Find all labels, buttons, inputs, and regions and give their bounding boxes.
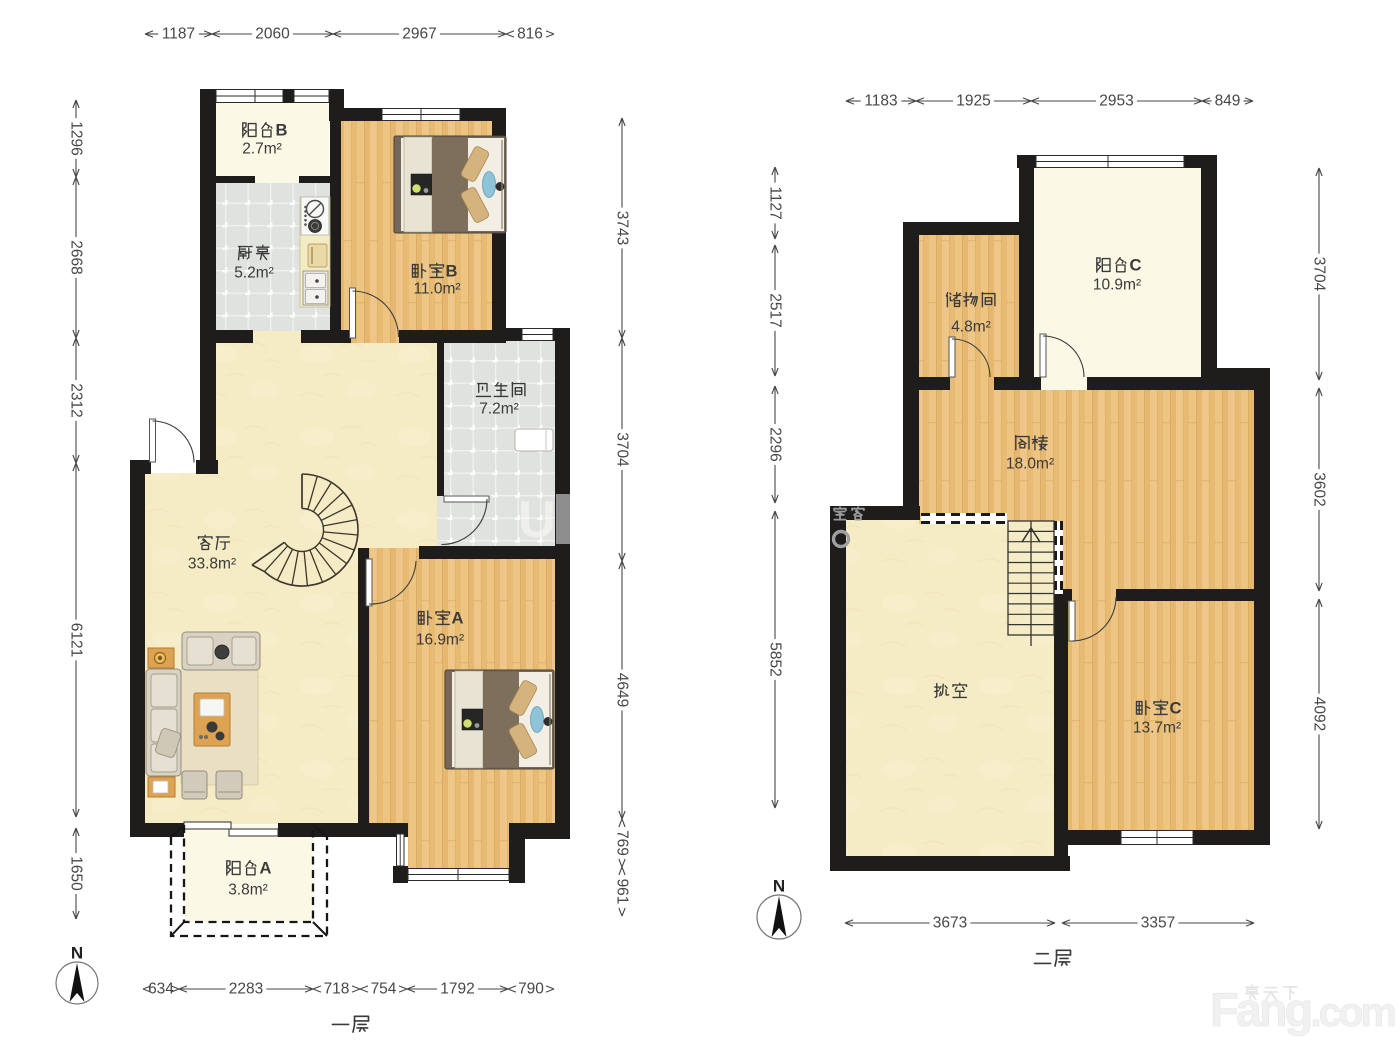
svg-text:3743: 3743 [614, 211, 631, 245]
svg-text:2967: 2967 [402, 26, 436, 43]
svg-text:1127: 1127 [767, 186, 784, 219]
svg-text:3704: 3704 [614, 432, 631, 467]
svg-text:2668: 2668 [68, 240, 85, 274]
svg-text:3704: 3704 [1311, 257, 1328, 292]
svg-text:4.8m²: 4.8m² [951, 319, 991, 336]
svg-text:5.2m²: 5.2m² [234, 265, 274, 282]
svg-text:816: 816 [517, 26, 543, 43]
svg-text:5852: 5852 [767, 642, 784, 676]
svg-text:N: N [773, 877, 785, 896]
svg-text:1650: 1650 [68, 856, 85, 891]
svg-text:790: 790 [518, 981, 544, 998]
svg-text:7.2m²: 7.2m² [479, 401, 519, 418]
svg-text:2060: 2060 [255, 26, 290, 43]
svg-text:1296: 1296 [68, 121, 85, 155]
svg-text:6121: 6121 [68, 623, 85, 657]
svg-text:B: B [446, 262, 458, 281]
svg-text:N: N [71, 944, 83, 963]
svg-text:16.9m²: 16.9m² [416, 632, 464, 649]
svg-text:718: 718 [324, 981, 350, 998]
svg-text:3673: 3673 [933, 915, 967, 932]
svg-text:634: 634 [148, 981, 174, 998]
svg-text:B: B [276, 121, 288, 140]
svg-text:2283: 2283 [229, 981, 263, 998]
svg-text:2312: 2312 [68, 383, 85, 417]
svg-text:2.7m²: 2.7m² [242, 141, 282, 158]
svg-text:1183: 1183 [864, 93, 897, 110]
svg-text:33.8m²: 33.8m² [188, 556, 236, 573]
svg-text:769: 769 [614, 830, 631, 856]
svg-text:13.7m²: 13.7m² [1133, 720, 1181, 737]
svg-text:Fang.com: Fang.com [1210, 983, 1395, 1036]
svg-text:1187: 1187 [162, 26, 195, 43]
svg-text:3602: 3602 [1311, 472, 1328, 506]
svg-text:1792: 1792 [440, 981, 474, 998]
svg-text:3.8m²: 3.8m² [228, 882, 268, 899]
svg-text:849: 849 [1215, 93, 1241, 110]
svg-text:754: 754 [371, 981, 397, 998]
svg-text:C: C [1130, 256, 1142, 275]
svg-text:U: U [518, 491, 556, 549]
svg-text:A: A [452, 609, 464, 628]
svg-text:2517: 2517 [767, 293, 784, 327]
svg-text:18.0m²: 18.0m² [1006, 456, 1054, 473]
svg-text:4649: 4649 [614, 673, 631, 707]
svg-text:2953: 2953 [1099, 93, 1133, 110]
svg-text:A: A [260, 859, 272, 878]
svg-text:10.9m²: 10.9m² [1093, 277, 1141, 294]
svg-text:961: 961 [614, 879, 631, 905]
svg-text:4092: 4092 [1311, 697, 1328, 731]
svg-text:3357: 3357 [1141, 915, 1175, 932]
svg-text:C: C [1170, 699, 1182, 718]
svg-text:2296: 2296 [767, 427, 784, 461]
svg-text:11.0m²: 11.0m² [413, 281, 460, 298]
svg-text:1925: 1925 [956, 93, 990, 110]
